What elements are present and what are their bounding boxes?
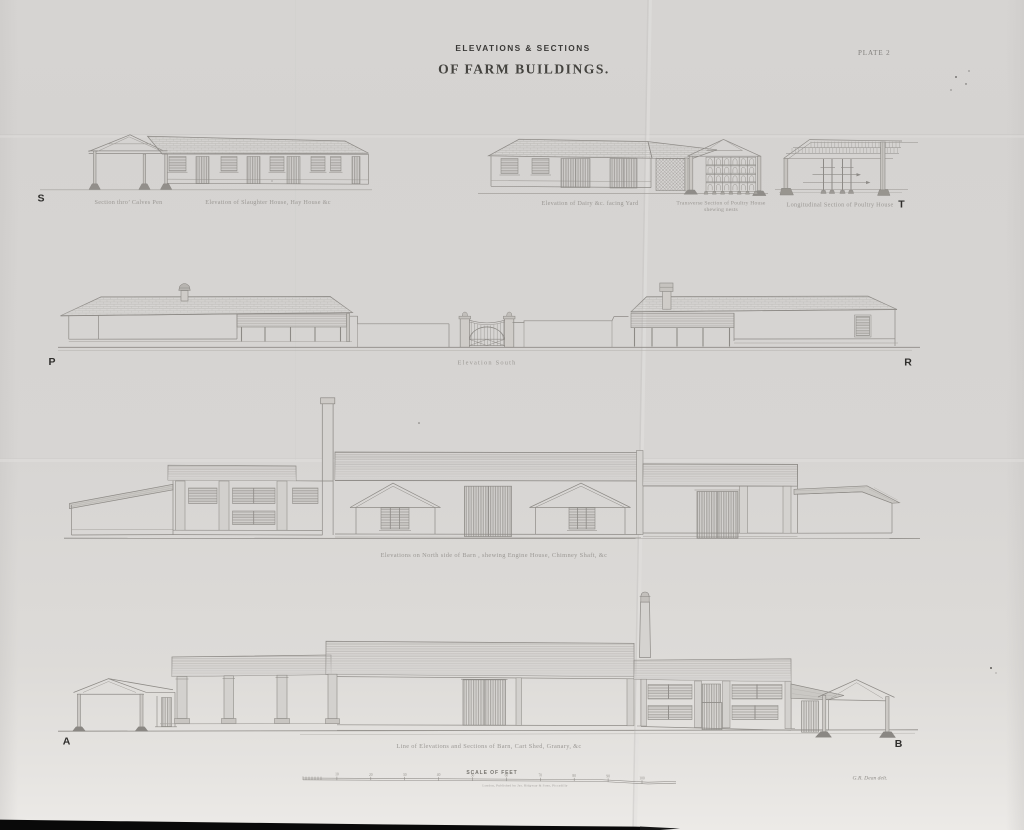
svg-text:G.R. Dean delt.: G.R. Dean delt. bbox=[853, 776, 888, 782]
svg-text:PLATE 2: PLATE 2 bbox=[858, 49, 891, 57]
svg-text:P: P bbox=[48, 356, 55, 368]
svg-text:Longitudinal Section of Poultr: Longitudinal Section of Poultry House bbox=[787, 202, 894, 209]
svg-text:T: T bbox=[898, 199, 905, 211]
svg-text:Elevation of Dairy &c. facing: Elevation of Dairy &c. facing Yard bbox=[542, 200, 640, 207]
svg-text:OF FARM BUILDINGS.: OF FARM BUILDINGS. bbox=[438, 62, 610, 77]
svg-text:80: 80 bbox=[572, 774, 576, 778]
svg-text:70: 70 bbox=[539, 774, 543, 778]
svg-text:10: 10 bbox=[335, 773, 339, 777]
svg-text:Line of Elevations and Section: Line of Elevations and Sections of Barn,… bbox=[396, 743, 581, 750]
svg-text:30: 30 bbox=[403, 773, 407, 777]
svg-text:ELEVATIONS & SECTIONS: ELEVATIONS & SECTIONS bbox=[455, 43, 590, 53]
svg-text:Elevations on North side of Ba: Elevations on North side of Barn , shewi… bbox=[381, 552, 608, 559]
svg-text:R: R bbox=[904, 357, 912, 369]
svg-text:40: 40 bbox=[437, 773, 441, 777]
svg-text:A: A bbox=[63, 736, 71, 748]
svg-text:shewing nests: shewing nests bbox=[704, 207, 738, 213]
svg-text:90: 90 bbox=[606, 774, 610, 778]
svg-text:Elevation of Slaughter House,: Elevation of Slaughter House, Hay House … bbox=[205, 199, 331, 206]
svg-text:B: B bbox=[895, 738, 903, 750]
svg-text:100: 100 bbox=[639, 776, 645, 780]
svg-text:Elevation South: Elevation South bbox=[457, 360, 516, 367]
svg-text:Transverse Section of Poultry: Transverse Section of Poultry House bbox=[676, 200, 765, 207]
svg-text:50: 50 bbox=[471, 773, 475, 777]
svg-text:S: S bbox=[37, 193, 44, 205]
svg-text:60: 60 bbox=[505, 774, 509, 778]
svg-text:20: 20 bbox=[369, 773, 373, 777]
svg-text:Section thro’ Calves Pen: Section thro’ Calves Pen bbox=[94, 199, 162, 206]
